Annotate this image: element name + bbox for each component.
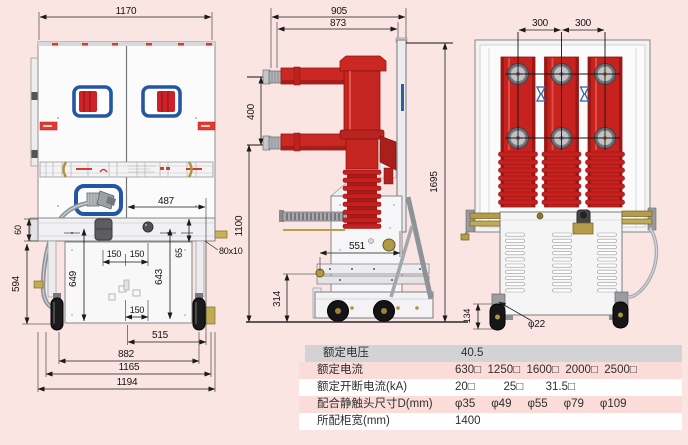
table-row: 额定电流 630□ 1250□ 1600□ 2000□ 2500□: [299, 362, 682, 379]
nameplate-strip: [40, 162, 213, 177]
caster-wheel-front-right: [193, 293, 205, 330]
wheel-dia-label: φ22: [528, 319, 546, 330]
row-label: 所配柜宽(mm): [317, 413, 390, 430]
dim-905: 905: [271, 6, 406, 68]
row-value: 1400: [455, 413, 481, 430]
trolley-wheel-left: [328, 301, 349, 322]
dim-busbar: 80x10: [205, 241, 243, 256]
earth-busbar: [215, 231, 227, 238]
dim-65-label: 65: [174, 248, 184, 258]
dim-594-label: 594: [11, 275, 22, 292]
row-value: φ35 φ49 φ55 φ79 φ109: [455, 396, 627, 413]
caster-wheel-front-left: [51, 293, 63, 330]
dim-400: 400: [246, 77, 261, 145]
lower-contact-arm: [263, 133, 347, 151]
dim-134-label: 134: [462, 309, 472, 324]
door-window-left: [74, 87, 111, 116]
dim-649-label: 649: [68, 270, 79, 287]
dim-300b-label: 300: [575, 18, 592, 29]
chassis-beam: [30, 218, 227, 241]
ground-pad-left: [34, 281, 43, 288]
rear-cable: [629, 228, 656, 297]
dim-150c-label: 150: [130, 305, 145, 315]
row-label: 额定开断电流(kA): [317, 379, 407, 396]
dim-873-label: 873: [330, 18, 347, 29]
dim-300a-label: 300: [532, 18, 549, 29]
dim-300-right: 300: [563, 18, 605, 30]
row-label: 额定电压: [323, 345, 369, 362]
rear-wheel-left: [490, 294, 505, 330]
side-view: 905 873 400 1100 1695 551 314: [234, 6, 468, 322]
dim-150b-label: 150: [130, 249, 145, 259]
dim-1695-label: 1695: [429, 171, 440, 193]
dim-882: 882: [59, 332, 199, 364]
dim-1100-label: 1100: [234, 215, 245, 236]
front-view: 1170 487 80x10 60 594 649 643: [11, 6, 243, 392]
table-row: 额定电压 40.5: [305, 345, 682, 362]
technical-drawing-page: 1170 487 80x10 60 594 649 643: [0, 0, 688, 445]
dim-643-label: 643: [154, 268, 165, 285]
upper-contact-arm: [263, 67, 347, 85]
beam-knob: [143, 222, 153, 232]
door-window-right: [143, 87, 180, 116]
dim-400-label: 400: [246, 103, 257, 120]
dim-300-left: 300: [519, 18, 561, 30]
table-row: 配合静触头尺寸D(mm) φ35 φ49 φ55 φ79 φ109: [299, 396, 682, 413]
dim-1165-label: 1165: [119, 362, 140, 373]
door-red-label-right: [198, 122, 215, 130]
dim-487-label: 487: [158, 196, 175, 207]
row-value: 20□ 25□ 31.5□: [455, 379, 575, 396]
dim-1100: 1100: [234, 145, 249, 322]
dim-905-label: 905: [331, 6, 348, 17]
hinge: [32, 92, 38, 100]
trolley-wheel-right: [374, 301, 395, 322]
door-red-label-left: [40, 122, 57, 130]
dim-1170-label: 1170: [116, 6, 137, 17]
cabinet-side-strip: [31, 58, 38, 166]
side-bracket-left: [461, 210, 500, 240]
dim-60-label: 60: [13, 225, 23, 235]
mech-brass-disc: [383, 239, 395, 251]
mechanism-box: [500, 210, 622, 320]
dim-551-label: 551: [349, 241, 366, 252]
ground-pad-right: [205, 307, 215, 324]
dim-882-label: 882: [118, 349, 135, 360]
dim-314-label: 314: [272, 290, 283, 307]
rear-wheel-right: [613, 292, 628, 328]
table-row: 额定开断电流(kA) 20□ 25□ 31.5□: [299, 379, 682, 396]
dim-1194-label: 1194: [117, 377, 138, 388]
spec-table: 额定电压 40.5 额定电流 630□ 1250□ 1600□ 2000□ 25…: [299, 345, 682, 430]
dim-150a-label: 150: [107, 249, 122, 259]
row-label: 配合静触头尺寸D(mm): [317, 396, 433, 413]
rear-view: 300 300: [461, 18, 656, 330]
row-value: 40.5: [461, 345, 483, 362]
row-label: 额定电流: [317, 362, 363, 379]
hinge: [32, 150, 38, 158]
busbar-label: 80x10: [219, 246, 243, 256]
dim-314: 314: [272, 274, 316, 322]
dim-515-label: 515: [152, 330, 169, 341]
beam-connector: [95, 219, 112, 240]
side-bracket-right: [622, 208, 656, 297]
dim-1170: 1170: [39, 6, 212, 40]
table-row: 所配柜宽(mm) 1400: [299, 413, 682, 430]
row-value: 630□ 1250□ 1600□ 2000□ 2500□: [455, 362, 637, 379]
cabinet-top-band: [38, 42, 215, 46]
